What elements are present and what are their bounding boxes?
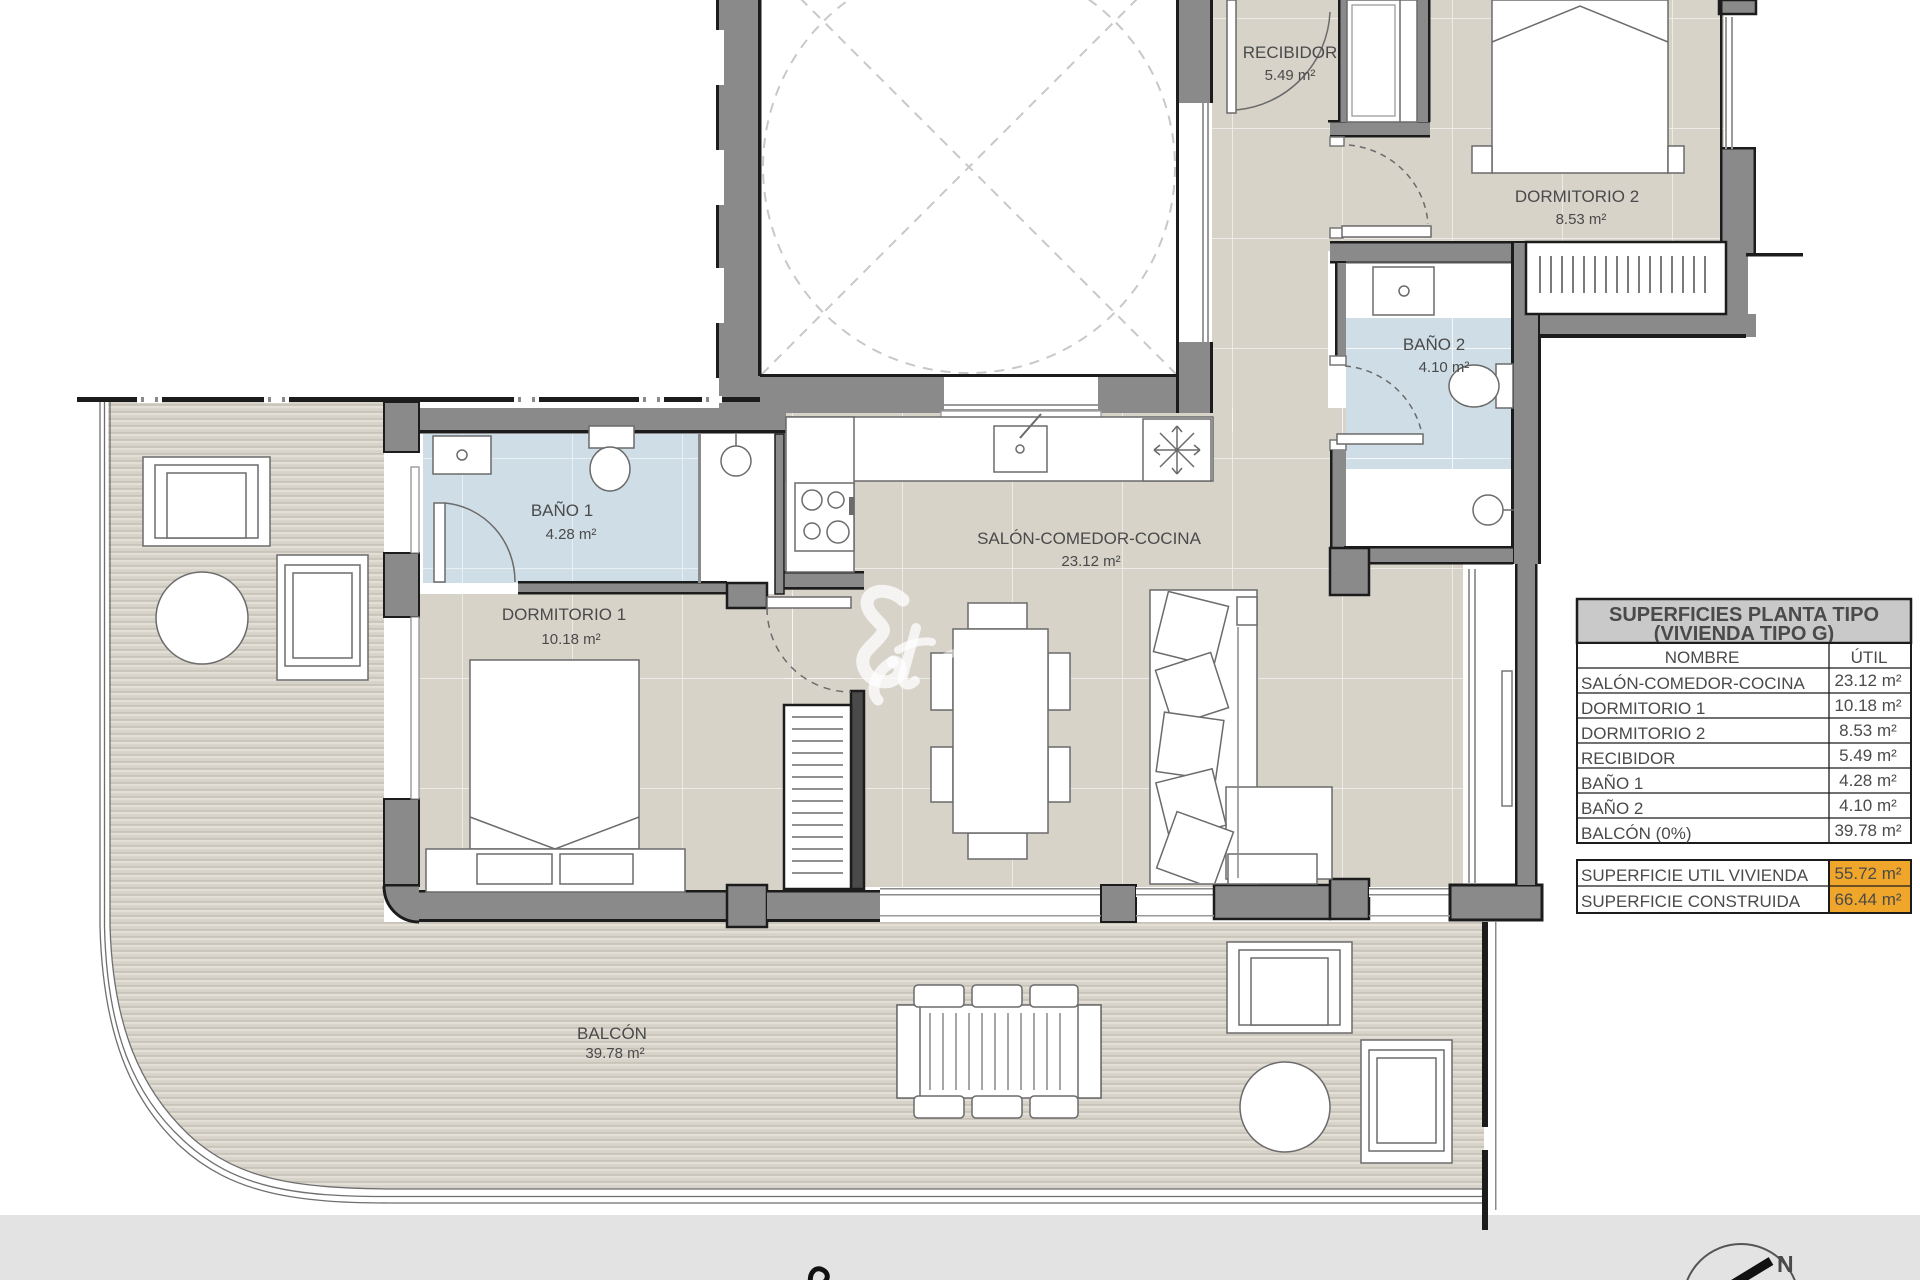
svg-text:5.49 m²: 5.49 m² [1265, 67, 1316, 84]
svg-text:RECIBIDOR: RECIBIDOR [1581, 749, 1675, 768]
svg-text:BALCÓN (0%): BALCÓN (0%) [1581, 824, 1692, 843]
svg-text:BALCÓN: BALCÓN [577, 1024, 647, 1043]
svg-text:55.72 m²: 55.72 m² [1834, 864, 1901, 883]
svg-text:BAÑO 2: BAÑO 2 [1581, 799, 1643, 818]
svg-text:SUPERFICIE CONSTRUIDA: SUPERFICIE CONSTRUIDA [1581, 892, 1801, 911]
svg-text:39.78 m²: 39.78 m² [585, 1045, 644, 1062]
svg-text:4.28 m²: 4.28 m² [1839, 771, 1897, 790]
svg-text:5.49 m²: 5.49 m² [1839, 746, 1897, 765]
svg-text:DORMITORIO 1: DORMITORIO 1 [1581, 699, 1705, 718]
svg-text:ÚTIL: ÚTIL [1851, 648, 1888, 667]
svg-text:39.78 m²: 39.78 m² [1834, 821, 1901, 840]
svg-text:RECIBIDOR: RECIBIDOR [1243, 43, 1337, 62]
svg-text:66.44 m²: 66.44 m² [1834, 890, 1901, 909]
svg-text:4.28 m²: 4.28 m² [546, 526, 597, 543]
svg-text:SALÓN-COMEDOR-COCINA: SALÓN-COMEDOR-COCINA [1581, 674, 1806, 693]
svg-text:8.53 m²: 8.53 m² [1839, 721, 1897, 740]
svg-text:NOMBRE: NOMBRE [1665, 648, 1740, 667]
svg-text:4.10 m²: 4.10 m² [1419, 359, 1470, 376]
svg-text:BAÑO 1: BAÑO 1 [531, 501, 593, 520]
svg-text:10.18 m²: 10.18 m² [1834, 696, 1901, 715]
svg-text:N: N [1777, 1251, 1794, 1277]
svg-text:10.18 m²: 10.18 m² [541, 631, 600, 648]
svg-text:BAÑO 1: BAÑO 1 [1581, 774, 1643, 793]
svg-text:SUPERFICIE UTIL VIVIENDA: SUPERFICIE UTIL VIVIENDA [1581, 866, 1809, 885]
svg-text:8.53 m²: 8.53 m² [1556, 211, 1607, 228]
svg-text:DORMITORIO 2: DORMITORIO 2 [1515, 187, 1639, 206]
svg-text:23.12 m²: 23.12 m² [1061, 553, 1120, 570]
svg-text:4.10 m²: 4.10 m² [1839, 796, 1897, 815]
svg-text:DORMITORIO 2: DORMITORIO 2 [1581, 724, 1705, 743]
svg-text:BAÑO 2: BAÑO 2 [1403, 335, 1465, 354]
svg-text:DORMITORIO 1: DORMITORIO 1 [502, 605, 626, 624]
svg-text:23.12 m²: 23.12 m² [1834, 671, 1901, 690]
svg-text:SALÓN-COMEDOR-COCINA: SALÓN-COMEDOR-COCINA [977, 529, 1202, 548]
svg-text:(VIVIENDA TIPO G): (VIVIENDA TIPO G) [1654, 623, 1834, 645]
